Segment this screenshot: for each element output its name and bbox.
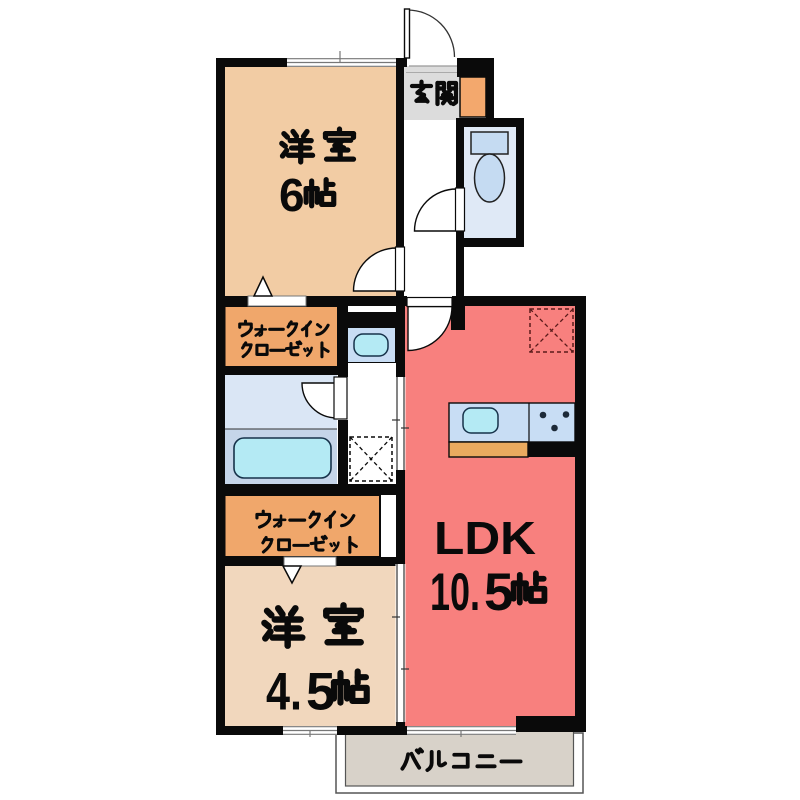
- svg-text:LDK: LDK: [434, 512, 536, 564]
- svg-text:10.: 10.: [430, 563, 480, 622]
- svg-text:4.: 4.: [266, 663, 302, 722]
- svg-text:6: 6: [279, 169, 305, 221]
- svg-text:5: 5: [484, 563, 513, 622]
